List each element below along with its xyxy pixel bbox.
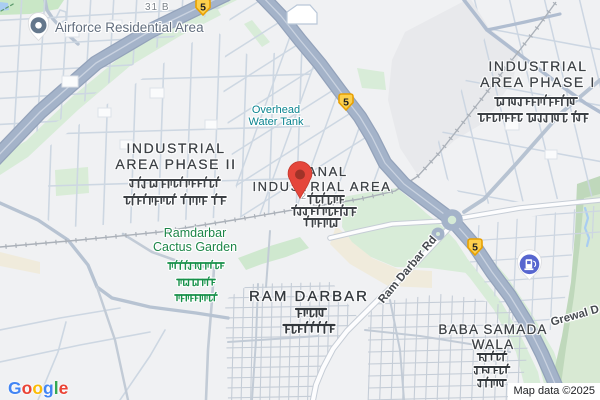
svg-text:5: 5 [472, 242, 478, 254]
svg-text:5: 5 [343, 97, 349, 109]
svg-text:5: 5 [200, 2, 206, 14]
